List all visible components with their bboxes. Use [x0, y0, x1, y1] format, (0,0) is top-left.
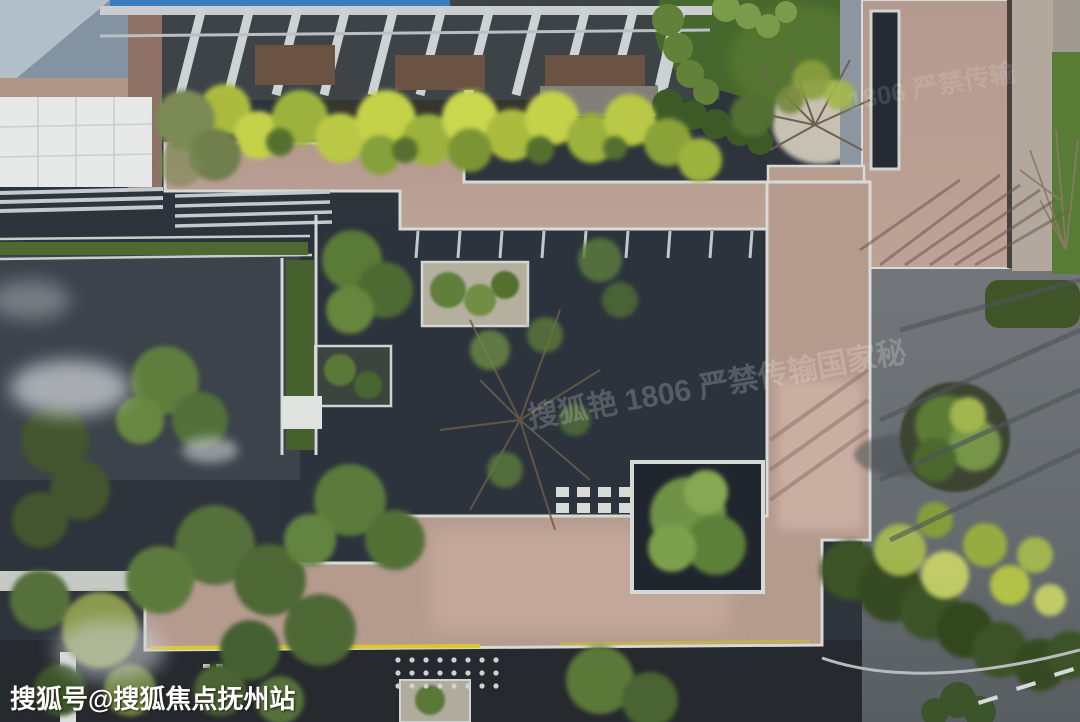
svg-text:搜狐号@搜狐焦点抚州站: 搜狐号@搜狐焦点抚州站: [10, 684, 295, 714]
